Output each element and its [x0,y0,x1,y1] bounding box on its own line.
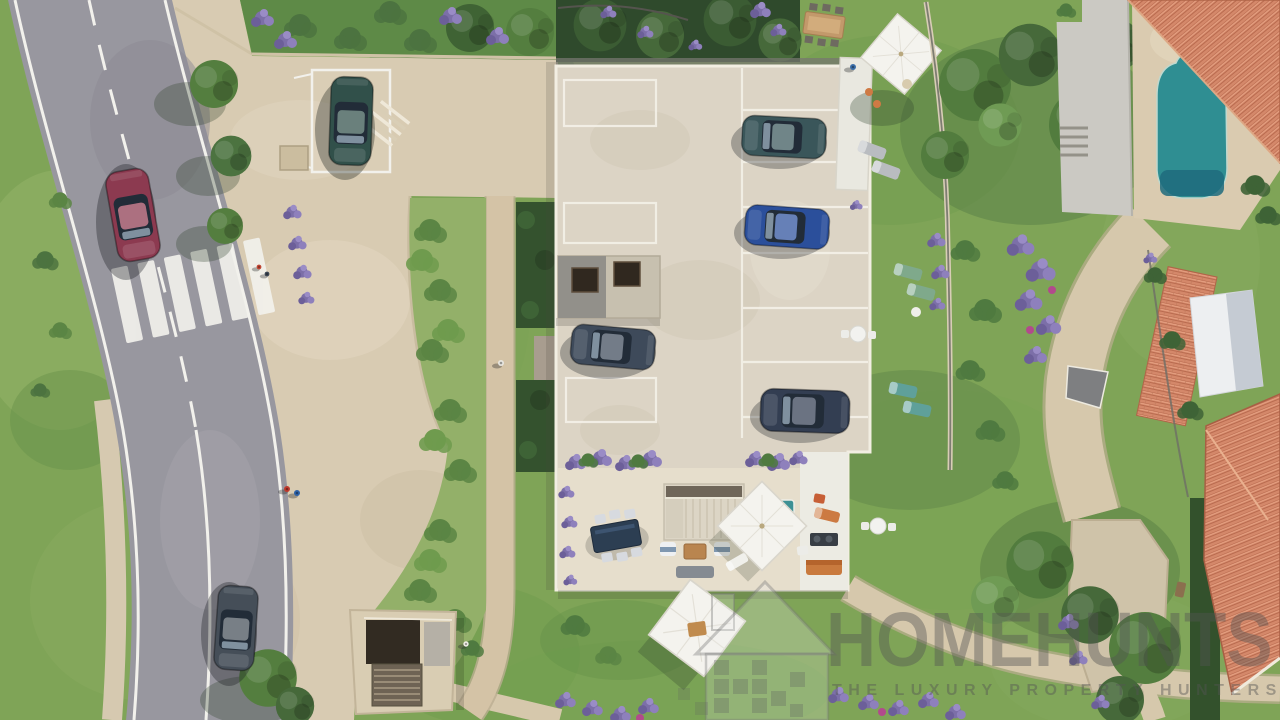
entrance-pit [366,620,420,664]
north-tree-zone [556,0,802,62]
building [546,58,870,599]
lower-terrace [1056,0,1132,216]
green-suv [328,76,373,166]
white-patio [836,57,873,190]
skylight-structure [556,256,660,326]
grey-car [213,585,259,672]
basement-entrance [350,610,484,714]
top-garden-wedge [240,0,558,58]
bench [676,566,714,578]
planter-wall [280,146,308,170]
skylight [572,268,598,292]
aerial-render: HOMEHUNTS THE LUXURY PROPERTY HUNTERS [0,0,1280,720]
pool-area [1056,0,1280,230]
skylight [614,262,640,286]
coffee-table [684,544,706,559]
scene-canvas [0,0,1280,720]
